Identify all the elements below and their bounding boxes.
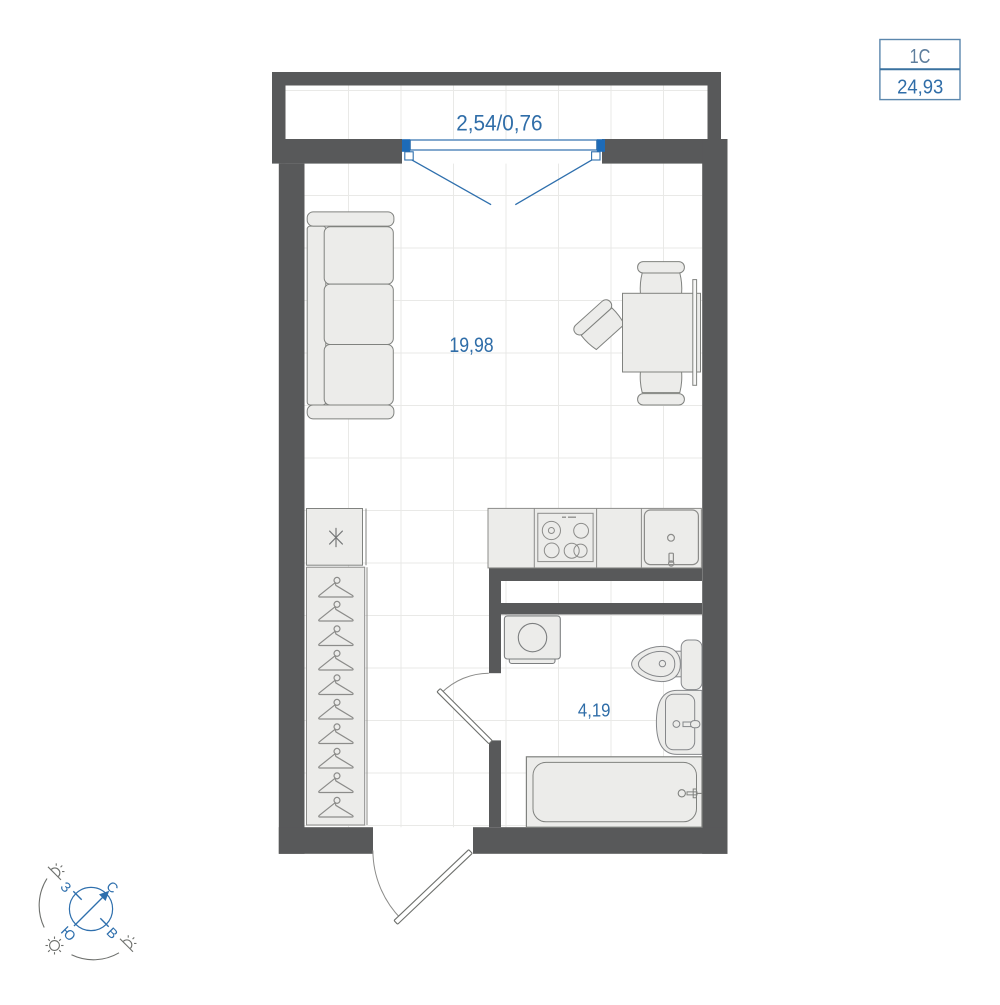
svg-text:1С: 1С xyxy=(910,44,931,67)
svg-text:19,98: 19,98 xyxy=(449,333,493,357)
svg-text:4,19: 4,19 xyxy=(578,700,611,721)
svg-text:2,54/0,76: 2,54/0,76 xyxy=(456,111,542,136)
svg-text:24,93: 24,93 xyxy=(897,77,943,99)
